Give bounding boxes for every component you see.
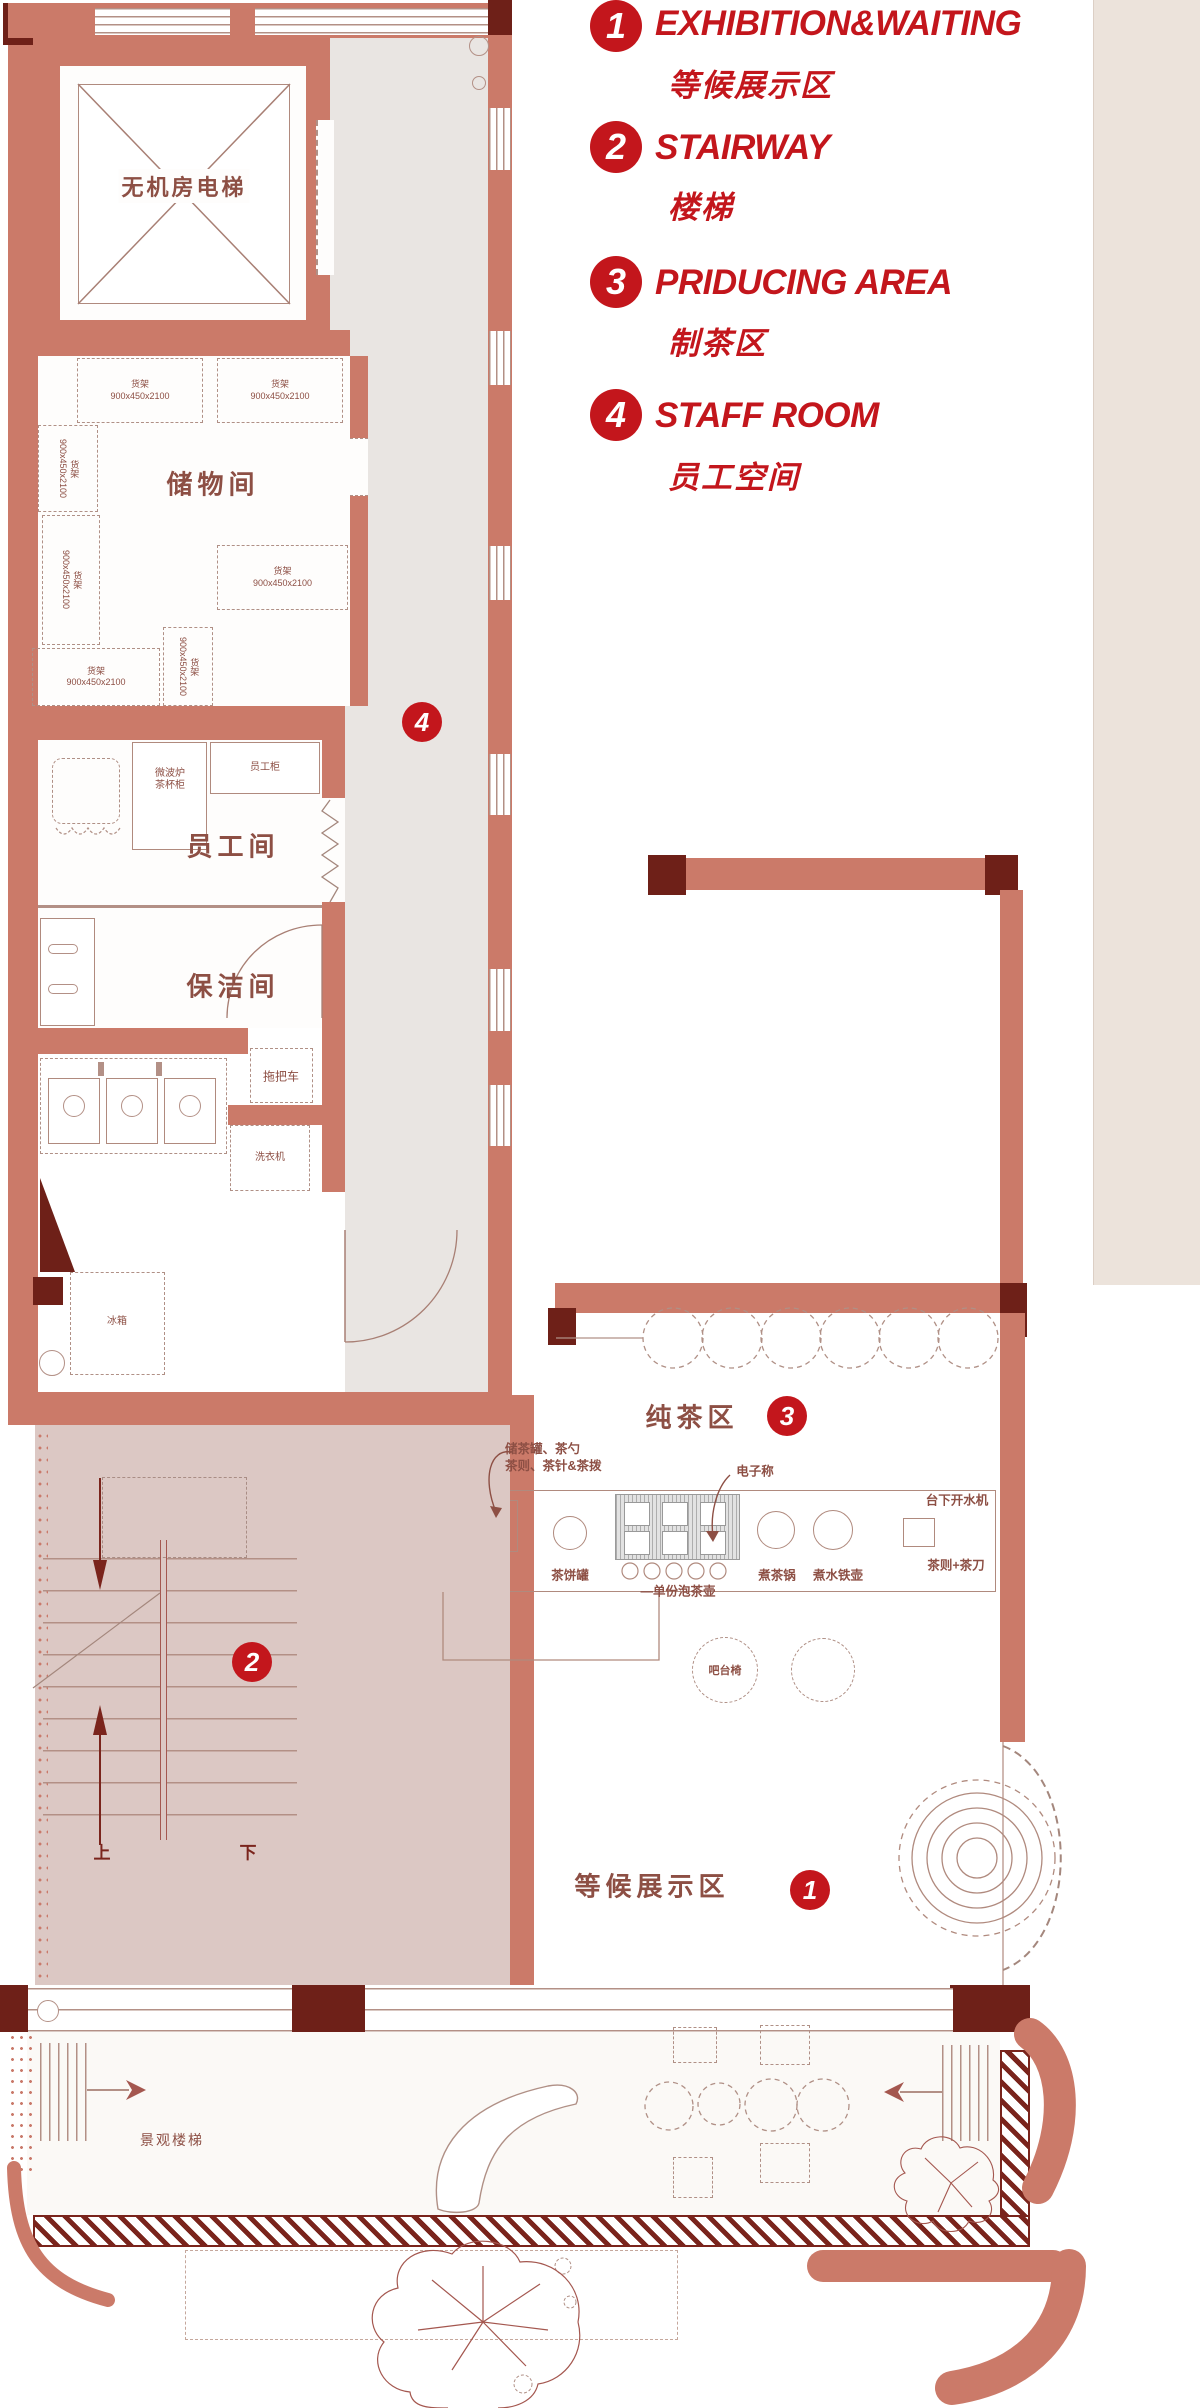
tea-jar-callout: 储茶罐、茶勺 茶则、茶针&茶拨 [505,1441,602,1475]
exterior-bench-bar [807,2250,1069,2282]
tea-cake-jar-circle [553,1516,587,1550]
staff-locker-label: 员工柜 [250,762,280,774]
teapot-slot [700,1502,726,1526]
teapot-slot [624,1502,650,1526]
teapot-slot [700,1531,726,1555]
legend-en-4: STAFF ROOM [655,396,879,436]
landscape-stairs-label: 景观楼梯 [140,2130,204,2150]
outdoor-seat [673,2027,717,2063]
stair-landing-outline [102,1477,247,1558]
entry-arrow-line-left [87,2089,129,2091]
legend-number-4: 4 [590,389,642,441]
storage-door-gap [350,438,368,496]
legend-en-3: PRIDUCING AREA [655,263,952,303]
cleaning-cabinet [40,918,95,1026]
shelf-label: 货架 [68,460,79,478]
shelf-unit: 货架900x450x2100 [77,358,203,423]
shelf-label: 货架 [188,658,199,676]
wall-tearoom-west [510,1395,534,1985]
wall-cleaning-south [30,1028,248,1054]
tea-scoop-knife-label: 茶则+茶刀 [927,1555,984,1574]
microwave-cabinet-label: 微波炉 茶杯柜 [155,768,185,792]
shelf-unit: 货架900x450x2100 [217,358,343,423]
door-hardware-circle-2 [472,76,486,90]
shelf-label: 货架 [87,666,105,677]
sink-drain-2 [121,1095,143,1117]
staff-room-label: 员工间 [186,827,279,864]
legend-en-1: EXHIBITION&WAITING [655,4,1021,44]
shelf-unit: 货架900x450x2100 [38,425,98,512]
window-north-b [255,8,490,35]
sink-drain-3 [179,1095,201,1117]
single-teapot-label: —单份泡茶壶 [640,1581,715,1600]
elevator-door-gap [316,120,334,275]
wall-block-tearoom-nw [548,1308,576,1345]
microwave-label: 微波炉 [155,768,185,779]
stair-up-label: 上 [94,1839,111,1864]
shelf-unit: 货架900x450x2100 [42,515,100,645]
shelf-label: 货架 [273,566,291,577]
legend-zh-3: 制茶区 [668,318,767,363]
terrace-edge-dots [8,2032,32,2172]
wall-extension-east [1000,890,1023,1283]
marker-staff-area: 4 [402,702,442,742]
shelf-label: 货架 [71,571,82,589]
hatched-wall-east [1000,2050,1030,2217]
stair-arrow-up [93,1705,107,1735]
window-north-a [95,8,230,35]
legend-number-3: 3 [590,256,642,308]
wall-block-south-mid [292,1983,365,2033]
teapot-slot [662,1502,688,1526]
shelf-size-label: 900x450x2100 [66,677,125,688]
marker-stairway: 2 [232,1642,272,1682]
water-boiler-label: 台下开水机 [926,1490,989,1509]
corridor-fill-top [330,38,488,356]
cleaning-room-label: 保洁间 [186,967,279,1004]
shelf-size-label: 900x450x2100 [110,391,169,402]
wall-tearoom-north [555,1283,1000,1313]
shelf-size-label: 900x450x2100 [253,578,312,589]
pure-tea-label: 纯茶区 [645,1398,738,1435]
waiting-area-label: 等候展示区 [574,1867,729,1904]
cup-cabinet-label: 茶杯柜 [155,780,185,791]
legend-zh-4: 员工空间 [668,452,800,497]
stair-arrow-down [93,1560,107,1590]
legend-number-1: 1 [590,0,642,52]
floor-drain-circle [39,1350,65,1376]
staff-window-gap [322,798,345,902]
outdoor-seat [760,2143,810,2183]
tea-jar-callout-line2: 茶则、茶针&茶拨 [505,1459,602,1473]
wall-block-small [33,1277,63,1305]
shelf-unit: 货架900x450x2100 [32,648,160,706]
wall-storage-corridor [350,356,368,706]
door-hardware-circle-1 [469,36,489,56]
tea-cake-jar-label: 茶饼罐 [551,1565,589,1584]
exterior-curved-wall-2 [952,2266,1069,2388]
storage-room-label: 储物间 [166,465,259,502]
window-east-2 [489,331,511,385]
entry-arrow-line-right [900,2091,942,2093]
mop-cart-label: 拖把车 [263,1068,299,1085]
outdoor-seat [673,2157,713,2198]
wall-corridor-east [488,35,512,1392]
shelf-size-label: 900x450x2100 [57,439,68,498]
shelf-label: 货架 [271,379,289,390]
single-teapot-machine [615,1494,740,1560]
sink-drain-1 [63,1095,85,1117]
window-east-1 [489,108,511,170]
corridor-fill-mid [368,356,488,706]
terrace [27,2032,1000,2215]
stair-divider [160,1540,167,1840]
legend-number-2: 2 [590,121,642,173]
tea-boil-pot-label: 煮茶锅 [758,1565,796,1584]
stair-treads-right [167,1558,297,1820]
bay-outer-arc [1003,1746,1061,1970]
hatched-wall-south [33,2215,1030,2247]
outdoor-seat [760,2025,810,2065]
plant-circles-row [643,1308,998,1368]
iron-kettle-label: 煮水铁壶 [813,1565,863,1584]
window-east-4 [489,754,511,815]
window-east-5 [489,969,511,1031]
shelf-size-label: 900x450x2100 [60,550,71,609]
corridor-fill-low [345,706,488,1392]
legend-en-2: STAIRWAY [655,128,830,168]
bar-chair-label: 吧台椅 [709,1662,742,1678]
bar-chair: 吧台椅 [692,1637,758,1703]
tea-boil-pot-circle [757,1511,795,1549]
scale-label: 电子称 [736,1461,774,1480]
wall-mop-niche [228,1105,345,1125]
wall-storage-staff [8,706,345,740]
legend-zh-2: 楼梯 [668,182,734,227]
stair-arrow-shaft-up [99,1735,101,1845]
window-east-3 [489,546,511,600]
washing-machine-label: 洗衣机 [255,1152,285,1164]
planting-bed-outline [185,2250,678,2340]
wall-block-ext-w [648,855,686,895]
cabinet-handle-2 [48,984,78,994]
stair-arrow-shaft-down [99,1478,101,1562]
bay-window-circles [899,1780,1055,1936]
stair-down-label: 下 [240,1839,257,1864]
window-east-6 [489,1085,511,1146]
elevator-label: 无机房电梯 [118,169,249,203]
shelf-size-label: 900x450x2100 [250,391,309,402]
shelf-unit: 货架900x450x2100 [217,545,348,610]
legend: 1 EXHIBITION&WAITING 等候展示区 2 STAIRWAY 楼梯… [560,0,1200,520]
marker-producing-area: 3 [767,1396,807,1436]
legend-zh-1: 等候展示区 [668,60,833,105]
cabinet-handle-1 [48,944,78,954]
shelf-size-label: 900x450x2100 [177,637,188,696]
wall-elevator-storage [38,330,350,356]
stair-treads-left [43,1558,160,1820]
ramp-triangle-icon [40,1178,75,1272]
window-south-left [28,1988,292,2032]
window-south-right [365,1988,953,2032]
tea-jar-callout-line1: 储茶罐、茶勺 [505,1442,580,1456]
marker-exhibition-waiting: 1 [790,1870,830,1910]
terrace-louvers-left [40,2043,87,2141]
wall-block-ext-e [985,855,1018,895]
tea-knife-square [903,1518,935,1547]
wall-tearoom-east [1000,1313,1025,1742]
faucet-1 [98,1062,104,1076]
fridge-label: 冰箱 [107,1316,127,1328]
exterior-curved-wall-1 [1030,2034,1060,2188]
terrace-louvers-right [942,2045,990,2141]
wall-extension-north [648,858,1018,890]
iron-kettle-circle [813,1510,853,1550]
column-circle [37,2000,59,2022]
faucet-2 [156,1062,162,1076]
shelf-label: 货架 [131,379,149,390]
wall-leftwing-south [8,1392,512,1425]
shelf-unit: 货架900x450x2100 [163,627,213,706]
wall-block-tearoom-se [950,1985,1030,2032]
teapot-slot [662,1531,688,1555]
wall-block-sw [0,1985,28,2032]
staff-table [52,758,120,824]
bar-chair [791,1638,855,1702]
teapot-slot [624,1531,650,1555]
floor-plan-canvas: 无机房电梯 货架900x450x2100 货架900x450x2100 货架90… [0,0,1200,2408]
